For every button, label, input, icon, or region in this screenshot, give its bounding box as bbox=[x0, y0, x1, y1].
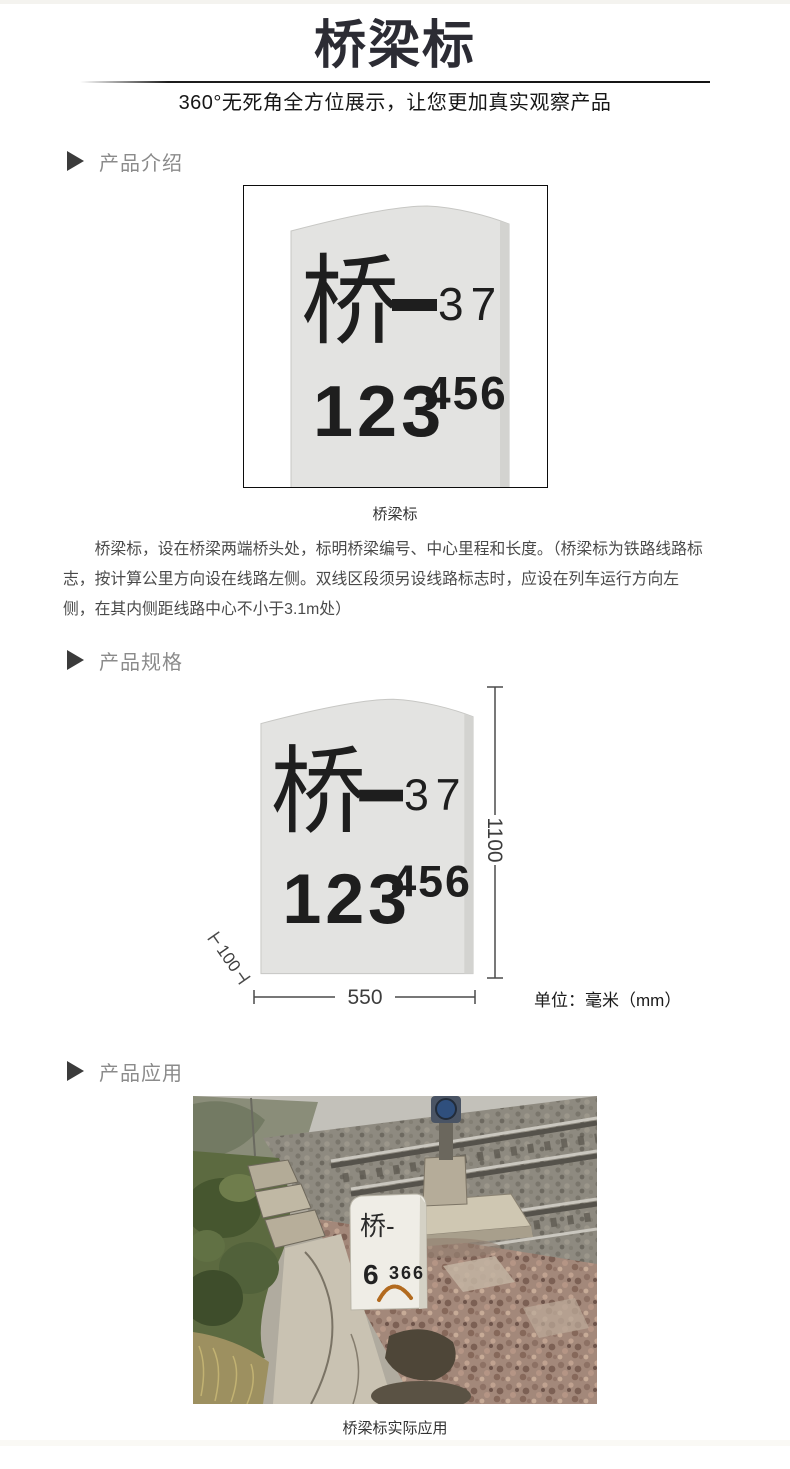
section-application: 产品应用 bbox=[0, 1058, 790, 1439]
product-image-frame bbox=[243, 185, 548, 488]
application-figure: 桥- 6 366 桥梁标实际应用 bbox=[0, 1096, 790, 1439]
section-header-spec: 产品规格 bbox=[67, 647, 790, 673]
section-intro: 产品介绍 桥梁标 桥梁标，设在桥梁两端桥头处，标明桥梁编号、中心里程和长度。（桥… bbox=[0, 148, 790, 625]
page-subtitle: 360°无死角全方位展示，让您更加真实观察产品 bbox=[0, 90, 790, 116]
product-description: 桥梁标，设在桥梁两端桥头处，标明桥梁编号、中心里程和长度。（桥梁标为铁路线路标志… bbox=[63, 535, 709, 625]
section-header-intro: 产品介绍 bbox=[67, 148, 790, 174]
photo-marker-number-sub: 366 bbox=[389, 1263, 425, 1283]
intro-figure: 桥梁标 bbox=[0, 185, 790, 525]
top-edge-strip bbox=[0, 0, 790, 4]
depth-dimension-value: 100 bbox=[213, 941, 245, 975]
section-header-application: 产品应用 bbox=[67, 1058, 790, 1084]
height-dimension-value: 1100 bbox=[483, 817, 506, 862]
unit-label: 单位：毫米（mm） bbox=[534, 991, 681, 1010]
section-title-spec: 产品规格 bbox=[99, 646, 183, 675]
bridge-marker-illustration bbox=[289, 199, 511, 488]
photo-bridge-marker: 桥- 6 366 bbox=[350, 1194, 427, 1310]
photo-marker-number-main: 6 bbox=[363, 1259, 379, 1290]
application-photo: 桥- 6 366 bbox=[193, 1096, 597, 1404]
section-title-application: 产品应用 bbox=[99, 1057, 183, 1086]
spec-diagram: 1100 550 100 单位：毫米（mm） bbox=[202, 675, 682, 1015]
photo-marker-line1: 桥- bbox=[360, 1211, 395, 1241]
intro-image-caption: 桥梁标 bbox=[0, 505, 790, 525]
bottom-edge-strip bbox=[0, 1440, 790, 1446]
width-dimension-value: 550 bbox=[347, 986, 382, 1009]
page-header: 桥梁标 360°无死角全方位展示，让您更加真实观察产品 bbox=[0, 0, 790, 116]
page-title: 桥梁标 bbox=[0, 16, 790, 76]
section-spec: 产品规格 1100 550 bbox=[0, 647, 790, 1015]
triangle-right-icon bbox=[67, 151, 84, 171]
application-image-caption: 桥梁标实际应用 bbox=[0, 1419, 790, 1439]
triangle-right-icon bbox=[67, 650, 84, 670]
title-divider bbox=[80, 81, 710, 83]
triangle-right-icon bbox=[67, 1061, 84, 1081]
section-title-intro: 产品介绍 bbox=[99, 147, 183, 176]
spec-figure: 1100 550 100 单位：毫米（mm） bbox=[202, 675, 790, 1015]
